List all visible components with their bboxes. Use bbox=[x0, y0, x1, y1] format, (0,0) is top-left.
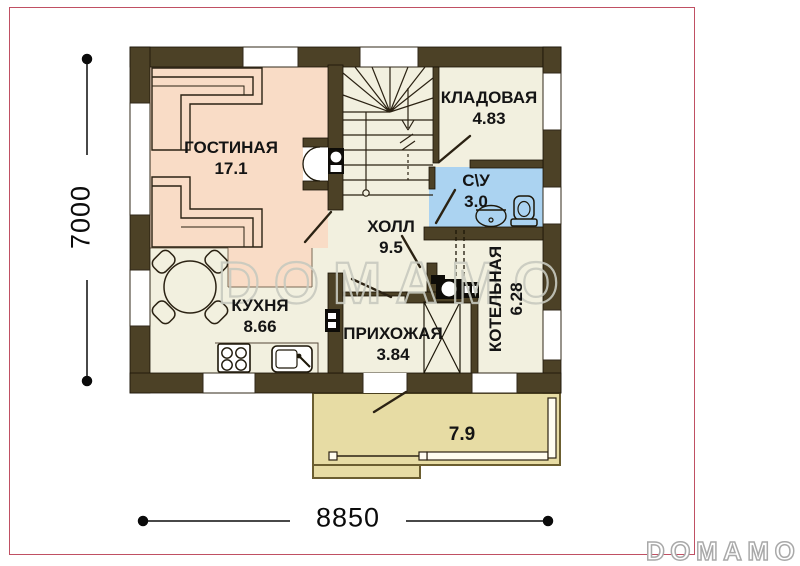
room-area: 4.83 bbox=[441, 108, 537, 129]
kitchen-sink-icon bbox=[272, 346, 312, 372]
room-label-kitchen: КУХНЯ 8.66 bbox=[231, 295, 288, 338]
room-area: 6.28 bbox=[506, 246, 527, 352]
stove-icon bbox=[218, 344, 250, 372]
room-name: С\У bbox=[462, 170, 490, 191]
floor-plan-page: DOMAMO DOMAMO ГОСТИНАЯ 17.1 КЛАДОВАЯ 4.8… bbox=[0, 0, 800, 566]
room-label-storage: КЛАДОВАЯ 4.83 bbox=[441, 87, 537, 130]
dimension-horizontal: 8850 bbox=[316, 503, 380, 534]
room-area: 8.66 bbox=[231, 316, 288, 337]
room-area: 17.1 bbox=[184, 158, 278, 179]
room-area: 3.84 bbox=[343, 344, 443, 365]
room-label-entry: ПРИХОЖАЯ 3.84 bbox=[343, 323, 443, 366]
room-name: КУХНЯ bbox=[231, 295, 288, 316]
dimension-vertical: 7000 bbox=[66, 185, 97, 249]
room-area: 3.0 bbox=[462, 191, 490, 212]
room-label-boiler-room: КОТЕЛЬНАЯ 6.28 bbox=[485, 246, 528, 352]
room-label-living: ГОСТИНАЯ 17.1 bbox=[184, 137, 278, 180]
room-label-bathroom: С\У 3.0 bbox=[462, 170, 490, 213]
toilet-icon bbox=[511, 196, 537, 226]
corner-logo: DOMAMO bbox=[646, 536, 800, 566]
room-area: 9.5 bbox=[367, 237, 415, 258]
room-name: КОТЕЛЬНАЯ bbox=[485, 246, 506, 352]
terrace bbox=[313, 393, 560, 478]
entrance-opening bbox=[363, 373, 407, 393]
room-label-hall: ХОЛЛ 9.5 bbox=[367, 216, 415, 259]
room-name: ГОСТИНАЯ bbox=[184, 137, 278, 158]
room-name: ХОЛЛ bbox=[367, 216, 415, 237]
room-name: ПРИХОЖАЯ bbox=[343, 323, 443, 344]
floor-plan-drawing: DOMAMO DOMAMO bbox=[0, 0, 800, 566]
terrace-label: 7.9 bbox=[449, 423, 475, 447]
room-name: КЛАДОВАЯ bbox=[441, 87, 537, 108]
